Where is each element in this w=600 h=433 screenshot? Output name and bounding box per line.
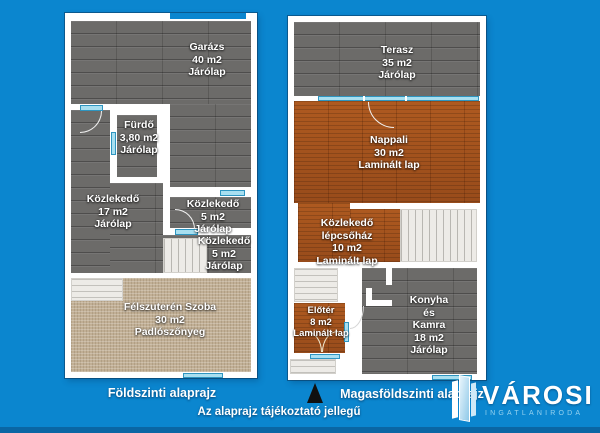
ground-floor-plan: Garázs 40 m2 Járólap Fürdő 3,80 m2 Járól… (65, 13, 257, 378)
door-marker (111, 132, 117, 155)
logo-shape (471, 382, 476, 416)
room-nappali-label: Nappali 30 m2 Laminált lap (358, 134, 419, 172)
room-name2: lépcsőház (316, 230, 377, 243)
room-floor-type: Járólap (198, 260, 251, 273)
room-konyha-label: Konyha és Kamra 18 m2 Járólap (410, 294, 449, 357)
ground-floor-caption: Földszinti alaprajz (108, 386, 216, 400)
bottom-accent-bar (0, 427, 600, 433)
room-name: Előtér (293, 305, 348, 317)
room-name: Közlekedő (187, 198, 240, 211)
brand-name: VÁROSI (482, 380, 594, 411)
glass-wall-mullion (405, 96, 408, 101)
room-name: Félszuterén Szoba (124, 301, 216, 314)
room-name3: Kamra (410, 319, 449, 332)
room-floor-type: Járólap (410, 344, 449, 357)
room-kozlekedo5b-label: Közlekedő 5 m2 Járólap (198, 235, 251, 273)
room-terasz-label: Terasz 35 m2 Járólap (378, 44, 415, 82)
room-name: Fürdő (120, 119, 159, 132)
staircase (400, 209, 477, 262)
room-area: 18 m2 (410, 332, 449, 345)
room-floor-type: Járólap (87, 218, 140, 231)
room-furdo-label: Fürdő 3,80 m2 Járólap (120, 119, 159, 157)
room-kozlekedo17-label: Közlekedő 17 m2 Járólap (87, 193, 140, 231)
garazs-floor-right (170, 104, 251, 187)
room-felszuteren-label: Félszuterén Szoba 30 m2 Padlószőnyeg (124, 301, 216, 339)
room-name: Közlekedő (87, 193, 140, 206)
room-floor-type: Laminált lap (358, 159, 419, 172)
room-floor-type: Laminált lap (316, 255, 377, 268)
room-area: 30 m2 (358, 147, 419, 160)
room-lepcsohaz-label: Közlekedő lépcsőház 10 m2 Laminált lap (316, 217, 377, 267)
room-eloter-label: Előtér 8 m2 Laminált lap (293, 305, 348, 340)
room-name: Nappali (358, 134, 419, 147)
room-name: Garázs (188, 41, 225, 54)
room-area: 17 m2 (87, 206, 140, 219)
room-area: 3,80 m2 (120, 132, 159, 145)
room-floor-type: Laminált lap (293, 328, 348, 340)
steps (290, 359, 336, 374)
room-name: Terasz (378, 44, 415, 57)
room-floor-type: Járólap (120, 144, 159, 157)
terrace-glass-wall (318, 96, 479, 101)
steps (294, 268, 338, 302)
glass-wall-mullion (363, 96, 366, 101)
north-arrow-icon (307, 383, 323, 403)
door-marker (80, 105, 103, 111)
room-name2: és (410, 307, 449, 320)
window-marker (220, 190, 245, 196)
room-area: 5 m2 (198, 248, 251, 261)
room-area: 8 m2 (293, 317, 348, 329)
room-floor-type: Járólap (378, 69, 415, 82)
room-name: Közlekedő (198, 235, 251, 248)
logo-shape (459, 375, 470, 422)
logo-building-icon (450, 374, 480, 422)
kozlekedo17-floor-left (71, 110, 110, 273)
room-area: 5 m2 (187, 211, 240, 224)
room-floor-type: Padlószőnyeg (124, 326, 216, 339)
room-name: Közlekedő (316, 217, 377, 230)
floorplan-canvas: Garázs 40 m2 Járólap Fürdő 3,80 m2 Járól… (0, 0, 600, 433)
brand-subtitle: INGATLANIRODA (485, 410, 583, 417)
room-garazs-label: Garázs 40 m2 Járólap (188, 41, 225, 79)
logo-shape (452, 380, 458, 418)
room-name: Konyha (410, 294, 449, 307)
wall-stub (366, 300, 392, 306)
upper-floor-plan: Terasz 35 m2 Járólap Nappali 30 m2 Lamin… (288, 16, 486, 380)
stairs (71, 278, 123, 301)
garage-door-opening (170, 13, 246, 19)
room-area: 30 m2 (124, 314, 216, 327)
room-area: 35 m2 (378, 57, 415, 70)
window-marker (183, 373, 223, 379)
wall-stub (386, 268, 392, 285)
room-area: 10 m2 (316, 242, 377, 255)
disclaimer-text: Az alaprajz tájékoztató jellegű (198, 406, 361, 418)
room-floor-type: Járólap (188, 66, 225, 79)
room-area: 40 m2 (188, 54, 225, 67)
room-kozlekedo5a-label: Közlekedő 5 m2 Járólap (187, 198, 240, 236)
entry-door-marker (310, 354, 340, 359)
room-floor-type: Járólap (187, 223, 240, 236)
agency-logo: VÁROSI INGATLANIRODA (450, 372, 598, 424)
